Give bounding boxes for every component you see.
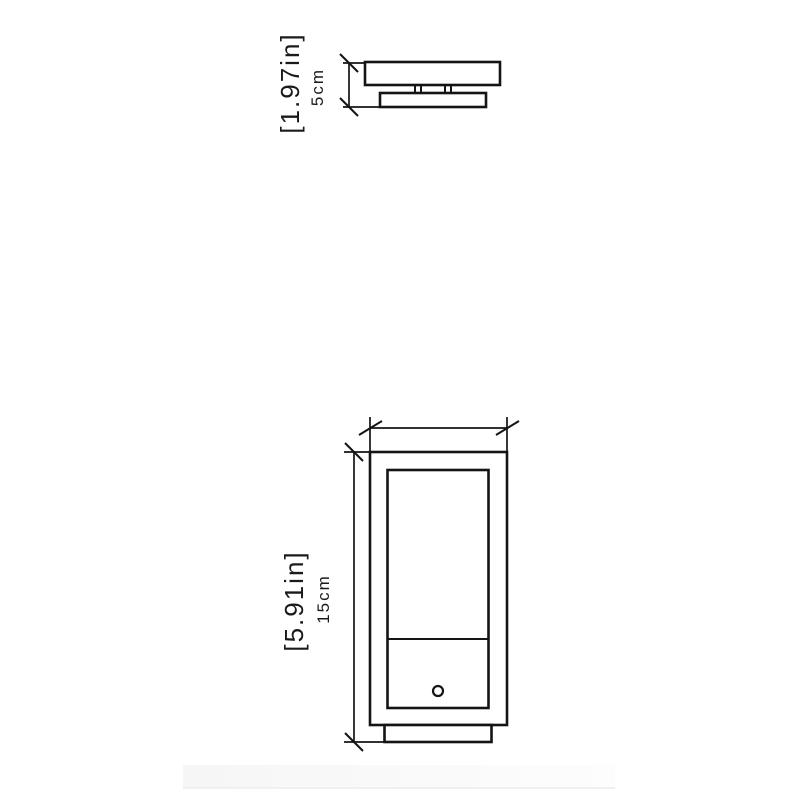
top-profile-view: [1.97in] 5cm: [275, 32, 500, 133]
front-view-width-dimension: [359, 417, 519, 453]
bottom-section-edge: [183, 765, 615, 789]
top-view-height-label-cm: 5cm: [308, 68, 327, 106]
top-view-height-label-inches: [1.97in]: [275, 32, 305, 133]
front-view: [5.91in] 15cm: [279, 417, 519, 751]
top-view-body-rect: [365, 62, 500, 85]
front-view-height-label-cm: 15cm: [314, 574, 333, 624]
front-view-base-rect: [385, 725, 492, 742]
front-view-height-label-inches: [5.91in]: [279, 550, 309, 651]
front-view-inner-panel-rect: [388, 470, 489, 708]
top-view-mounting-plate-rect: [380, 93, 486, 107]
drawing-canvas: [1.97in] 5cm: [0, 0, 800, 800]
front-view-knob-circle: [433, 686, 443, 696]
dimension-drawing-svg: [1.97in] 5cm: [0, 0, 800, 800]
